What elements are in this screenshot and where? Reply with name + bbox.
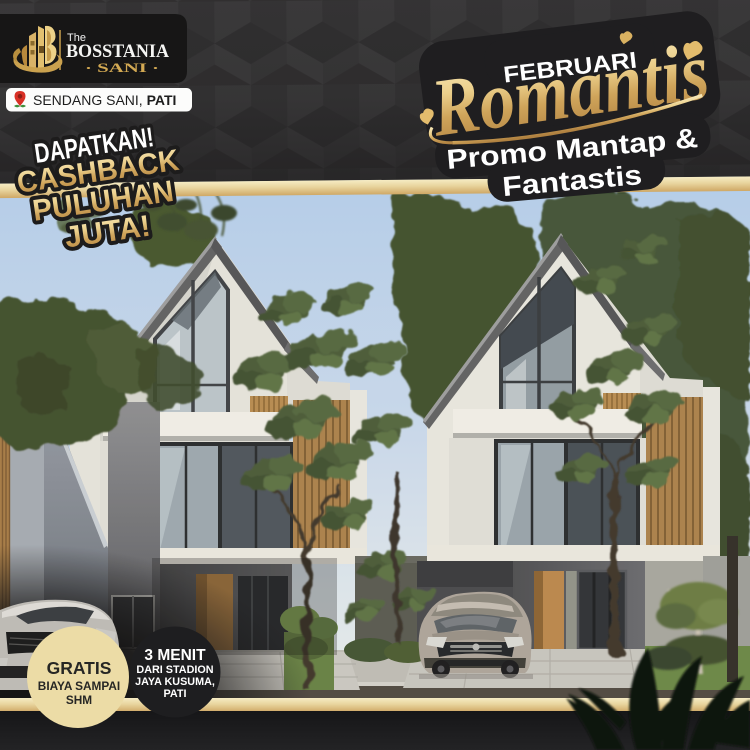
svg-text:3 MENIT: 3 MENIT — [144, 647, 206, 664]
svg-text:GRATIS: GRATIS — [47, 658, 112, 678]
svg-text:JAYA KUSUMA,: JAYA KUSUMA, — [135, 676, 215, 688]
svg-text:PATI: PATI — [164, 688, 187, 700]
svg-text:· SANI ·: · SANI · — [85, 61, 159, 75]
svg-text:SENDANG SANI, PATI: SENDANG SANI, PATI — [33, 92, 176, 108]
svg-text:DARI STADION: DARI STADION — [136, 664, 213, 676]
svg-text:BIAYA SAMPAI: BIAYA SAMPAI — [38, 679, 120, 693]
svg-text:BOSSTANIA: BOSSTANIA — [66, 41, 169, 62]
svg-text:SHM: SHM — [66, 693, 92, 707]
